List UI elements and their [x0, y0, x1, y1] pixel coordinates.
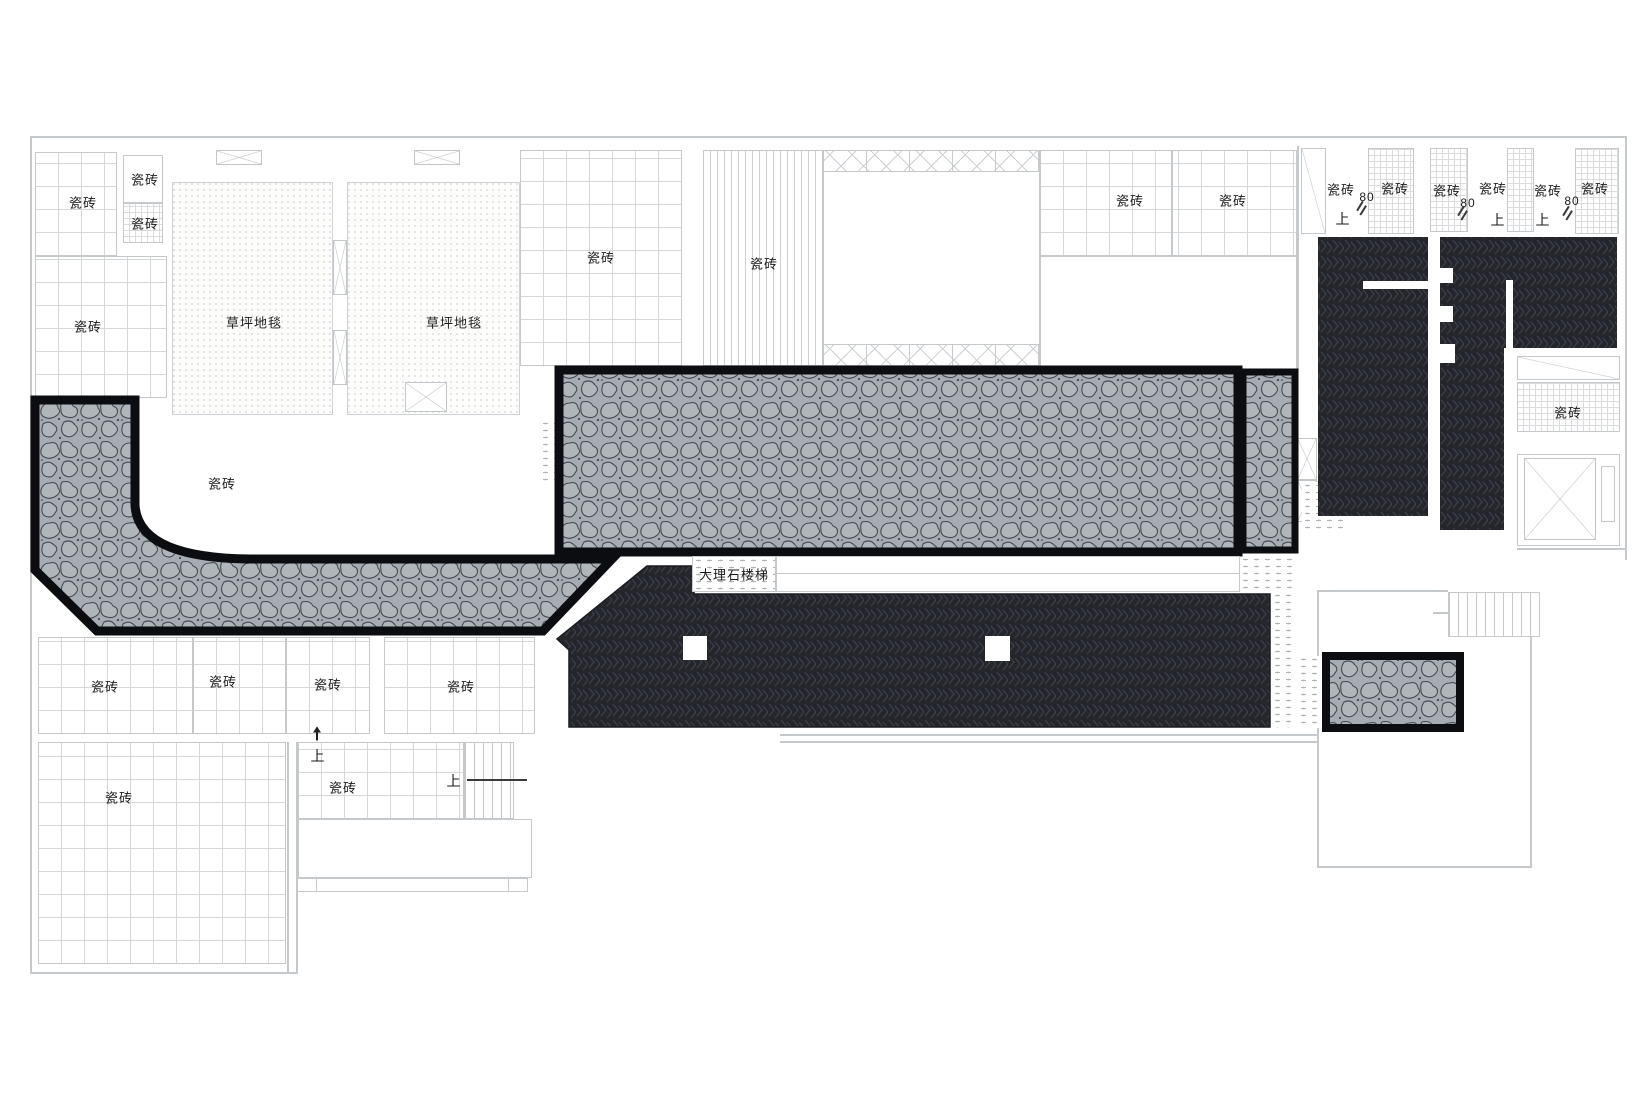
- text-label: 瓷砖: [447, 677, 475, 696]
- up-arrow-icon: [316, 728, 318, 741]
- text-label: 瓷砖: [587, 248, 615, 267]
- text-label: 瓷砖: [1219, 191, 1247, 210]
- text-label: 瓷砖: [208, 474, 236, 493]
- text-label: 瓷砖: [1534, 181, 1562, 200]
- text-label: 上: [1336, 209, 1351, 229]
- text-label: 瓷砖: [1554, 403, 1582, 422]
- text-label: 瓷砖: [1479, 179, 1507, 198]
- text-label: 瓷砖: [329, 778, 357, 797]
- text-label: 瓷砖: [750, 254, 778, 273]
- dash-right-icon: [467, 779, 527, 781]
- text-label: 大理石楼梯: [699, 565, 769, 584]
- text-label: 上: [1491, 210, 1506, 230]
- labels-layer: 瓷砖瓷砖瓷砖瓷砖草坪地毯草坪地毯瓷砖瓷砖瓷砖瓷砖瓷砖大理石楼梯瓷砖瓷砖瓷砖瓷砖瓷…: [0, 0, 1650, 1100]
- text-label: 瓷砖: [1381, 179, 1409, 198]
- text-label: 瓷砖: [131, 170, 159, 189]
- text-label: 瓷砖: [69, 193, 97, 212]
- slash-icon: [1457, 206, 1465, 216]
- text-label: 瓷砖: [314, 675, 342, 694]
- text-label: 瓷砖: [209, 672, 237, 691]
- slash-icon: [1356, 201, 1364, 211]
- text-label: 草坪地毯: [426, 313, 482, 332]
- text-label: 瓷砖: [1433, 181, 1461, 200]
- text-label: 上: [447, 771, 462, 791]
- text-label: 瓷砖: [1327, 180, 1355, 199]
- text-label: 瓷砖: [105, 788, 133, 807]
- text-label: 瓷砖: [74, 317, 102, 336]
- text-label: 上: [311, 746, 326, 766]
- text-label: 瓷砖: [131, 214, 159, 233]
- text-label: 草坪地毯: [226, 313, 282, 332]
- text-label: 上: [1536, 210, 1551, 230]
- text-label: 瓷砖: [1581, 179, 1609, 198]
- text-label: 瓷砖: [1116, 191, 1144, 210]
- text-label: 瓷砖: [91, 677, 119, 696]
- floor-plan: 瓷砖瓷砖瓷砖瓷砖草坪地毯草坪地毯瓷砖瓷砖瓷砖瓷砖瓷砖大理石楼梯瓷砖瓷砖瓷砖瓷砖瓷…: [0, 0, 1650, 1100]
